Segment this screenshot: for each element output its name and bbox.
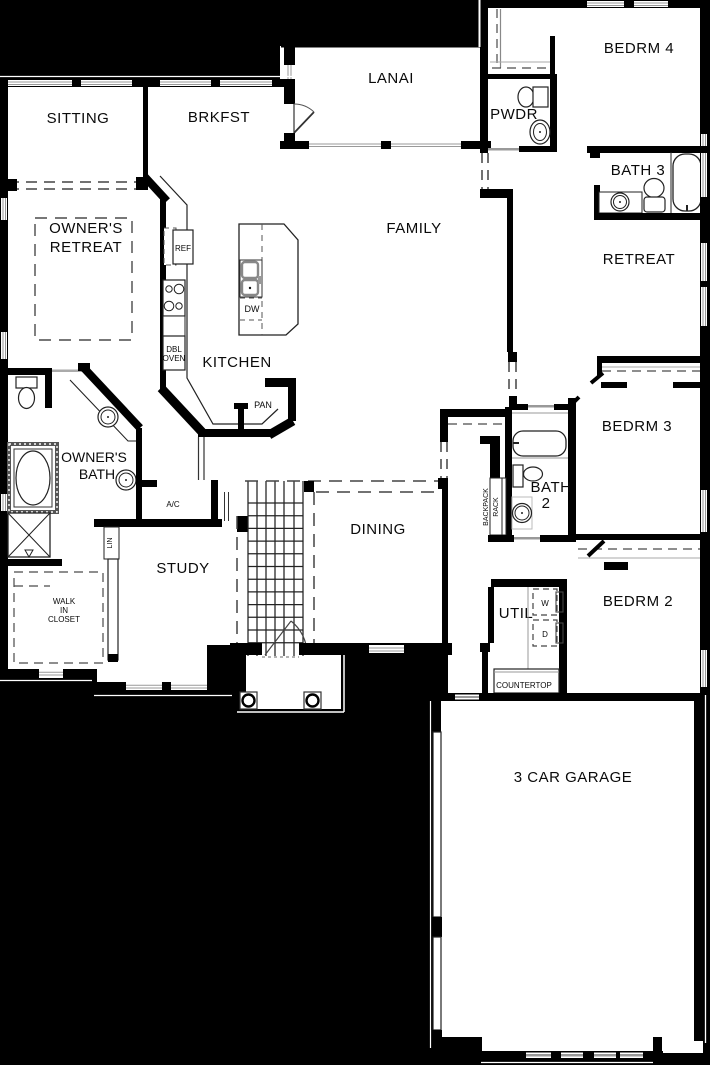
svg-text:2: 2	[542, 495, 551, 512]
svg-text:COUNTERTOP: COUNTERTOP	[496, 681, 552, 690]
svg-text:W: W	[541, 599, 549, 608]
svg-text:DW: DW	[245, 304, 260, 314]
svg-text:3 CAR GARAGE: 3 CAR GARAGE	[514, 769, 633, 786]
svg-text:BRKFST: BRKFST	[188, 109, 250, 126]
svg-text:LANAI: LANAI	[368, 70, 414, 87]
svg-text:LIN: LIN	[107, 538, 114, 549]
svg-text:WALK: WALK	[53, 597, 76, 606]
svg-text:PAN: PAN	[254, 400, 272, 410]
svg-text:BATH: BATH	[531, 479, 572, 496]
svg-text:BEDRM 3: BEDRM 3	[602, 418, 672, 435]
svg-text:IN: IN	[60, 606, 68, 615]
svg-text:BEDRM 2: BEDRM 2	[603, 593, 673, 610]
svg-text:CLOSET: CLOSET	[48, 615, 80, 624]
svg-text:OVEN: OVEN	[163, 354, 186, 363]
svg-text:STUDY: STUDY	[156, 560, 209, 577]
svg-text:A/C: A/C	[166, 500, 180, 509]
svg-text:REF: REF	[175, 244, 191, 253]
svg-text:DBL: DBL	[166, 345, 182, 354]
svg-text:D: D	[542, 630, 548, 639]
svg-text:BATH: BATH	[79, 466, 115, 482]
svg-text:DINING: DINING	[350, 521, 406, 538]
svg-text:OWNER'S: OWNER'S	[61, 449, 127, 465]
svg-text:RETREAT: RETREAT	[603, 251, 675, 268]
svg-text:RACK: RACK	[493, 497, 500, 517]
svg-text:BACKPACK: BACKPACK	[483, 488, 490, 526]
svg-text:BEDRM 4: BEDRM 4	[604, 40, 674, 57]
svg-text:FAMILY: FAMILY	[386, 220, 441, 237]
svg-text:BATH 3: BATH 3	[611, 162, 665, 179]
svg-text:PWDR: PWDR	[490, 106, 538, 123]
svg-text:RETREAT: RETREAT	[50, 239, 122, 256]
svg-text:OWNER'S: OWNER'S	[49, 220, 123, 237]
svg-text:SITTING: SITTING	[47, 110, 110, 127]
svg-text:KITCHEN: KITCHEN	[202, 354, 271, 371]
